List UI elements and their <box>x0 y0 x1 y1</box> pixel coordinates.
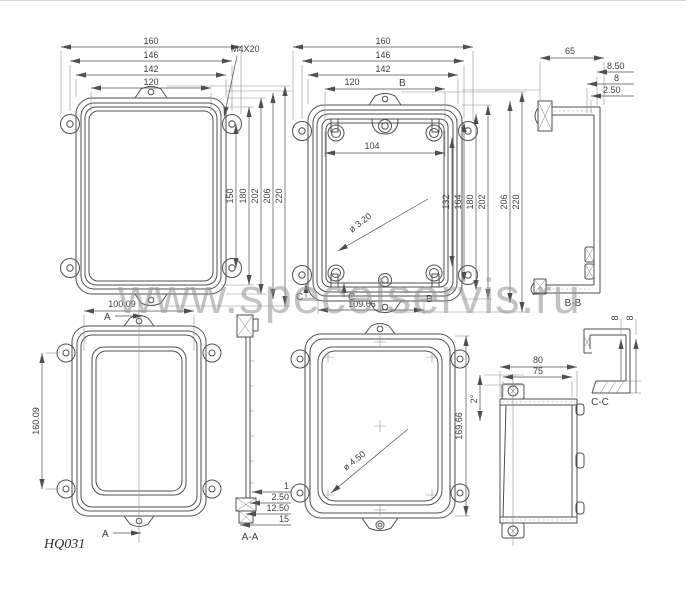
dimension-lines <box>293 47 522 312</box>
corner-screw-boss <box>328 119 442 287</box>
dim-text: 8.50 <box>607 61 625 71</box>
view-section-cc: 8 8 C-C <box>584 315 641 408</box>
dim-text: 160 <box>375 36 390 46</box>
dim-text: 160.09 <box>31 407 41 435</box>
dim-text: 142 <box>375 64 390 74</box>
extension-lines <box>61 51 293 306</box>
box-side-outlines <box>500 399 584 523</box>
section-mark-b-bottom: B <box>426 294 433 305</box>
cc-profile <box>584 329 630 393</box>
dim-text: 15 <box>279 514 289 524</box>
lid-front-outlines <box>76 98 226 294</box>
dim-text: 104 <box>364 141 379 151</box>
dim-text: 8 <box>625 315 635 320</box>
dim-text: 120 <box>344 77 359 87</box>
dim-text: 169.66 <box>454 412 464 440</box>
view-section-bb: 65 8.50 8 2.50 B-B <box>531 46 634 309</box>
cross-marks <box>322 336 438 516</box>
dim-text: 8 <box>614 73 619 83</box>
dim-text: 1 <box>284 481 289 491</box>
dim-text: 164 <box>453 194 463 209</box>
view-box-side: 80 75 2° <box>469 355 584 546</box>
dim-text: 65 <box>565 46 575 56</box>
section-label: A-A <box>242 532 259 543</box>
dim-text: 180 <box>238 188 248 203</box>
section-label: C-C <box>591 397 609 408</box>
view-lid-front: 160 146 142 120 150 180 202 206 220 M4X2… <box>61 36 294 306</box>
extension-lines <box>293 51 540 314</box>
section-mark-b-top: B <box>399 78 406 89</box>
dim-text: 146 <box>143 50 158 60</box>
dim-text: 132 <box>441 194 451 209</box>
dim-text: 150 <box>225 188 235 203</box>
dim-text: 8 <box>610 315 620 320</box>
section-mark-a-top: A <box>104 312 111 323</box>
screw-callout: M4X20 <box>231 44 260 54</box>
dim-text: 160 <box>143 36 158 46</box>
hinge-tab <box>369 94 401 313</box>
view-lid-inside: 169.66 ø 4.50 <box>291 324 470 531</box>
dim-text: 75 <box>533 366 543 376</box>
extension-lines <box>484 371 577 397</box>
dim-text: 206 <box>262 188 272 203</box>
section-mark-c-left: C <box>296 292 303 303</box>
view-lid-back: 100.09 A 160.09 A <box>31 299 221 543</box>
extension-lines <box>540 62 604 113</box>
hole-callout: ø 4.50 <box>341 449 367 473</box>
extension-lines <box>621 319 641 393</box>
hinge-tab <box>135 87 167 306</box>
dim-text: 180 <box>465 194 475 209</box>
dim-text: 206 <box>499 194 509 209</box>
engineering-drawing: 160 146 142 120 150 180 202 206 220 M4X2… <box>0 1 686 601</box>
dim-text: 2.50 <box>271 492 289 502</box>
dim-text: 100.09 <box>108 299 136 309</box>
dim-text: 202 <box>250 188 260 203</box>
hole-callout: ø 3.20 <box>347 211 373 235</box>
dim-text: 146 <box>375 50 390 60</box>
cable-gland <box>372 119 398 134</box>
dim-text: 109.66 <box>348 299 376 309</box>
dim-text: 2.50 <box>603 85 621 95</box>
drawing-sheet: 160 146 142 120 150 180 202 206 220 M4X2… <box>0 0 686 601</box>
dim-text: 220 <box>274 188 284 203</box>
bb-profile <box>531 101 600 295</box>
extension-lines <box>46 315 194 489</box>
dim-text: 12.50 <box>266 503 289 513</box>
dim-text: 202 <box>477 194 487 209</box>
dim-text: 142 <box>143 64 158 74</box>
view-section-aa: 1 2.50 12.50 15 A-A <box>236 315 291 543</box>
dim-text: 120 <box>143 77 158 87</box>
section-mark-a-bottom: A <box>102 529 109 540</box>
view-box-front: 160 146 142 120 B 104 132 164 180 202 20… <box>293 36 541 314</box>
dim-text: 220 <box>511 194 521 209</box>
drawing-code: HQ031 <box>44 537 85 553</box>
dim-text: 80 <box>533 355 543 365</box>
bottom-boss <box>379 274 392 287</box>
draft-angle-text: 2° <box>469 394 479 403</box>
hole-leader <box>331 429 408 493</box>
section-label: B-B <box>565 298 582 309</box>
mounting-ear <box>61 115 242 278</box>
